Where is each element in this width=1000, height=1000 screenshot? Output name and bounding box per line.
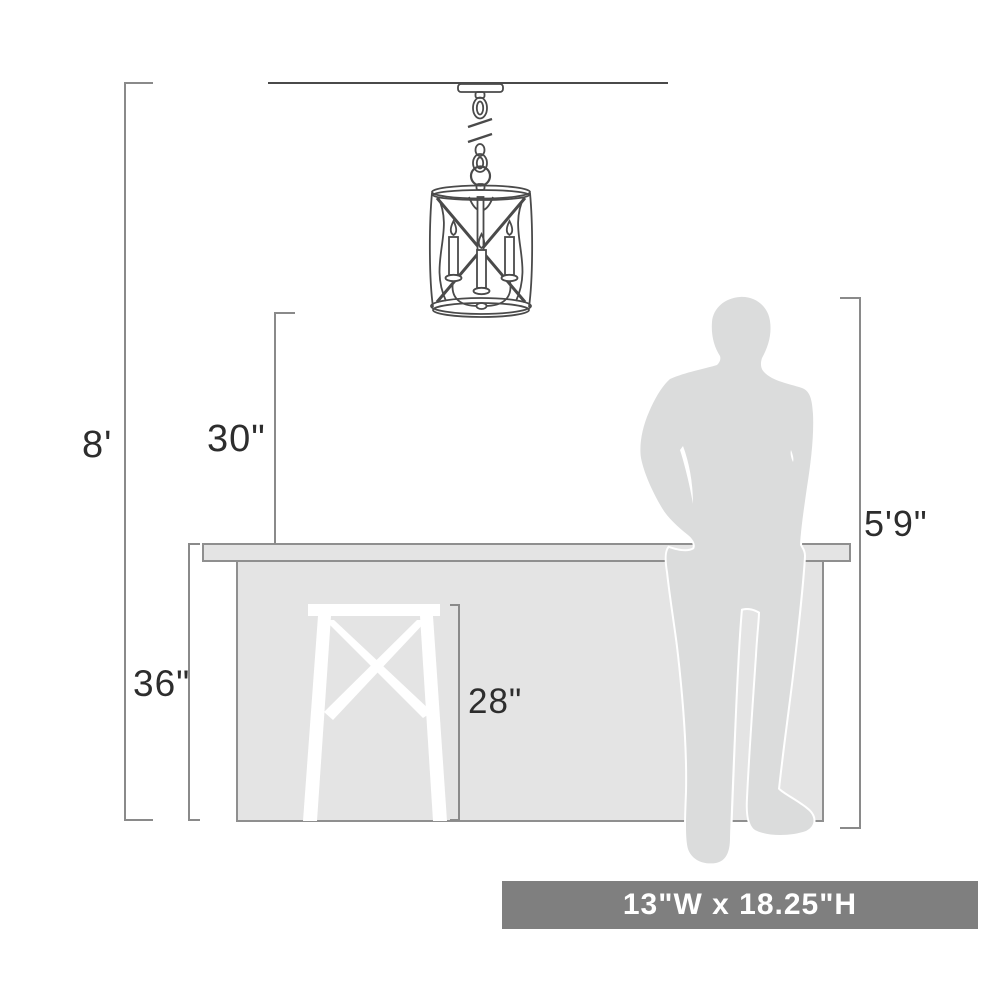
candle-body xyxy=(477,250,486,288)
stool-seat xyxy=(308,604,440,616)
dim-5ft9in-bracket xyxy=(840,298,860,828)
chain-break-mark-top xyxy=(468,119,492,127)
cage-left-rail xyxy=(430,193,433,307)
candle-left xyxy=(446,221,462,281)
candle-body xyxy=(449,237,458,275)
chain-link-inner xyxy=(477,102,483,115)
ceiling-height-label: 8' xyxy=(82,426,112,464)
cage-right-scroll xyxy=(516,197,524,301)
candle-bobeche xyxy=(446,275,462,281)
pendant-fixture-drawing xyxy=(430,184,532,317)
clearance-label: 30" xyxy=(207,420,266,458)
chain-break-mark-bottom xyxy=(468,134,492,142)
dim-36in-bracket xyxy=(189,544,200,820)
flame-icon xyxy=(507,221,512,235)
flame-icon xyxy=(451,221,456,235)
candle-right xyxy=(502,221,518,281)
pendant-chain-drawing xyxy=(458,84,503,186)
person-height-label: 5'9" xyxy=(864,506,928,542)
dimension-diagram: 8' 30" 36" 28" 5'9" 13"W x 18.25"H xyxy=(0,0,1000,1000)
fixture-size-text: 13"W x 18.25"H xyxy=(623,888,857,922)
stool-height-label: 28" xyxy=(468,684,522,719)
fixture-size-banner: 13"W x 18.25"H xyxy=(502,881,978,929)
candle-bobeche xyxy=(502,275,518,281)
cage-left-scroll xyxy=(438,197,446,301)
candle-bobeche xyxy=(474,288,490,294)
candle-body xyxy=(505,237,514,275)
diagram-line-art xyxy=(0,0,1000,1000)
cage-right-rail xyxy=(529,193,532,307)
dim-8ft-bracket xyxy=(125,83,153,820)
dim-30in-bracket xyxy=(275,313,295,544)
ceiling-canopy xyxy=(458,84,503,92)
counter-height-label: 36" xyxy=(133,665,190,702)
